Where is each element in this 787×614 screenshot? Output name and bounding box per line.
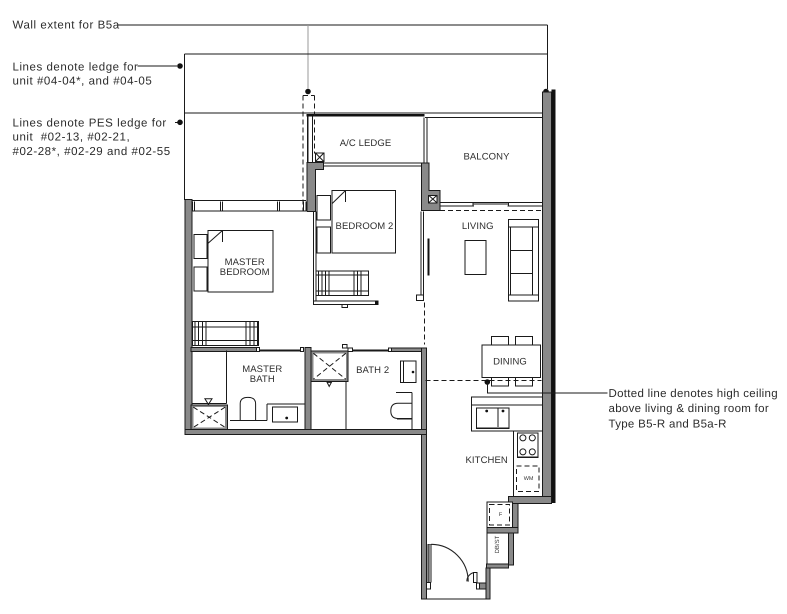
svg-text:BATH: BATH	[250, 374, 275, 385]
svg-text:DB/ST: DB/ST	[494, 535, 501, 553]
svg-text:A/C LEDGE: A/C LEDGE	[340, 138, 392, 149]
svg-text:#02-28*, #02-29 and #02-55: #02-28*, #02-29 and #02-55	[13, 146, 171, 158]
svg-text:KITCHEN: KITCHEN	[465, 455, 507, 466]
svg-text:Type B5-R and B5a-R: Type B5-R and B5a-R	[609, 419, 727, 431]
svg-text:BEDROOM: BEDROOM	[220, 267, 270, 278]
svg-text:LIVING: LIVING	[462, 221, 494, 232]
svg-text:BEDROOM 2: BEDROOM 2	[336, 221, 394, 232]
svg-text:above living & dining room for: above living & dining room for	[609, 403, 770, 415]
svg-text:Dotted line denotes high ceili: Dotted line denotes high ceiling	[609, 388, 778, 400]
svg-text:DINING: DINING	[493, 357, 527, 368]
svg-text:BATH 2: BATH 2	[356, 365, 389, 376]
svg-text:BALCONY: BALCONY	[463, 152, 510, 163]
svg-text:unit #04-04*, and #04-05: unit #04-04*, and #04-05	[13, 76, 153, 88]
svg-text:Lines denote ledge for: Lines denote ledge for	[13, 61, 139, 73]
svg-text:Wall extent for B5a: Wall extent for B5a	[13, 20, 120, 32]
svg-text:unit #02-13, #02-21,: unit #02-13, #02-21,	[13, 132, 131, 144]
svg-text:Lines denote PES ledge for: Lines denote PES ledge for	[13, 117, 167, 129]
svg-text:WM: WM	[524, 476, 534, 482]
